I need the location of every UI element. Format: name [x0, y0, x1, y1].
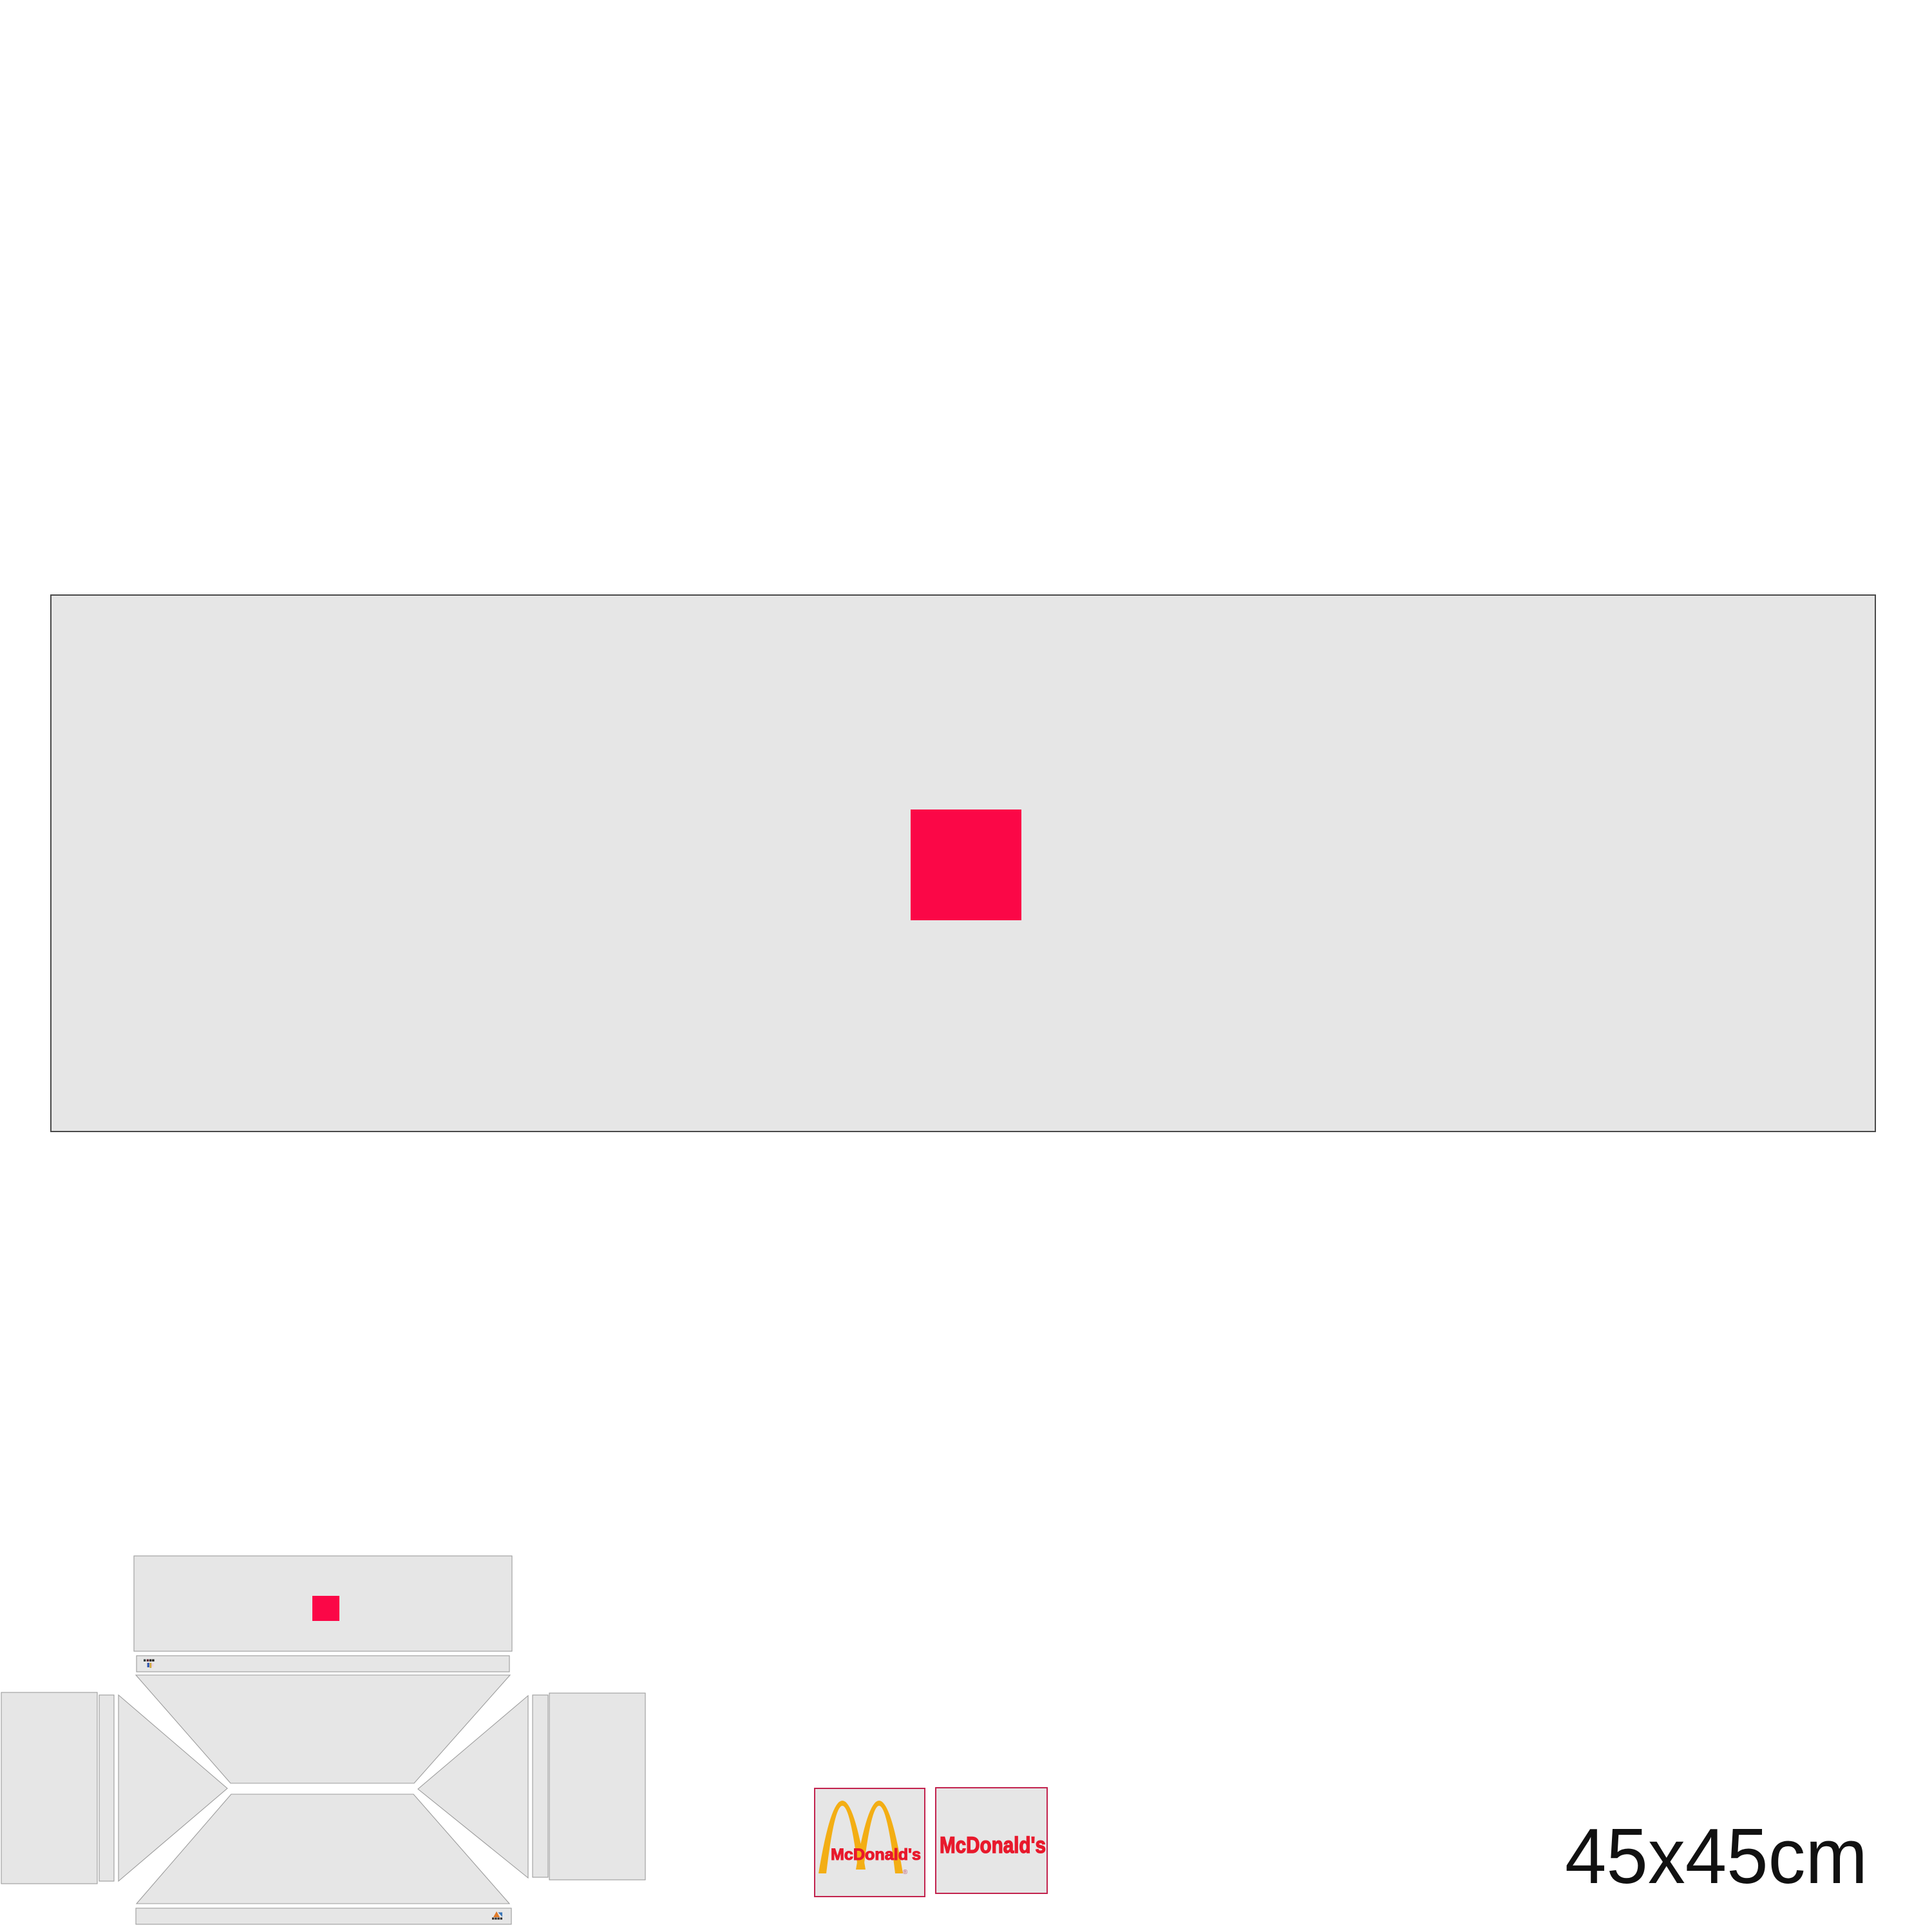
svg-text:McDonald's: McDonald's	[940, 1833, 1046, 1858]
svg-text:McDonald's: McDonald's	[831, 1846, 921, 1864]
svg-text:®: ®	[903, 1869, 908, 1876]
svg-text:45x45cm: 45x45cm	[1565, 1812, 1868, 1900]
